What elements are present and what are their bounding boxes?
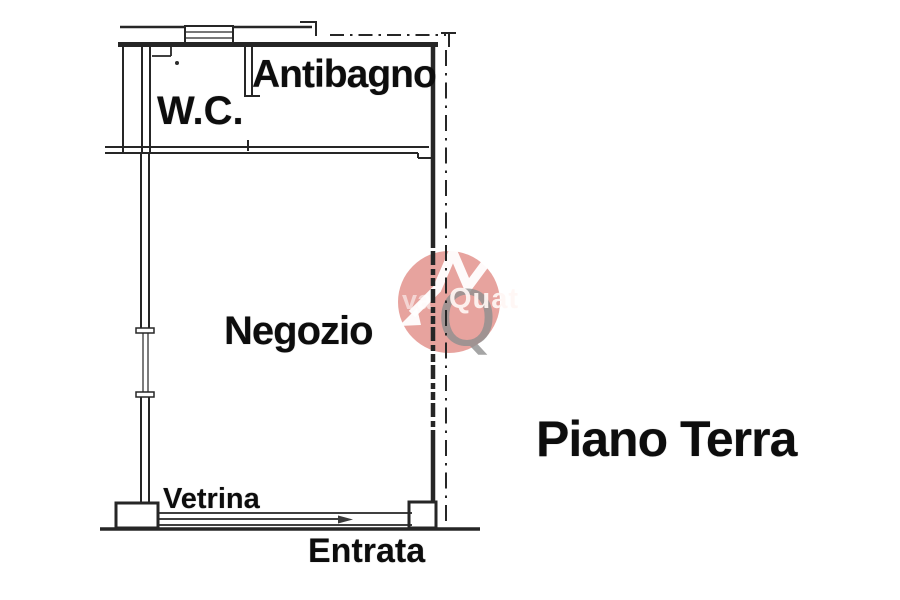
wall-wc-left <box>142 47 150 152</box>
wc-corner-notch <box>152 47 171 56</box>
room-label-wc: W.C. <box>157 91 244 131</box>
watermark-text-fragment: Quat <box>449 283 519 315</box>
left-window-glass-lines <box>143 333 148 392</box>
top-exterior-step <box>300 21 316 36</box>
pier-bottom-left <box>116 503 158 528</box>
left-window-tick-bottom <box>136 392 154 397</box>
room-label-negozio: Negozio <box>224 311 373 351</box>
floor-title: Piano Terra <box>536 414 796 464</box>
pier-bottom-right <box>409 502 436 528</box>
room-label-antibagno: Antibagno <box>252 55 436 94</box>
wall-rooms-bottom <box>105 147 429 153</box>
left-window-tick-top <box>136 328 154 333</box>
scan-speck <box>175 61 179 65</box>
wall-negozio-left-upper <box>141 154 149 328</box>
feature-label-vetrina: Vetrina <box>163 485 260 514</box>
wall-wc-divider <box>245 47 252 97</box>
floor-plan-sheet: Q va Quat <box>0 0 900 600</box>
top-window-symbol <box>185 26 233 44</box>
agency-watermark: Q va Quat <box>398 251 519 363</box>
vetrina-arrowhead-icon <box>338 516 353 524</box>
wall-rooms-bottom-step <box>418 153 432 158</box>
floor-plan-drawing: Q va Quat <box>0 0 900 600</box>
feature-label-entrata: Entrata <box>308 534 425 568</box>
boundary-tick-topright <box>441 33 456 47</box>
watermark-text-faint: va <box>402 285 433 315</box>
wall-negozio-left-lower <box>141 397 149 503</box>
